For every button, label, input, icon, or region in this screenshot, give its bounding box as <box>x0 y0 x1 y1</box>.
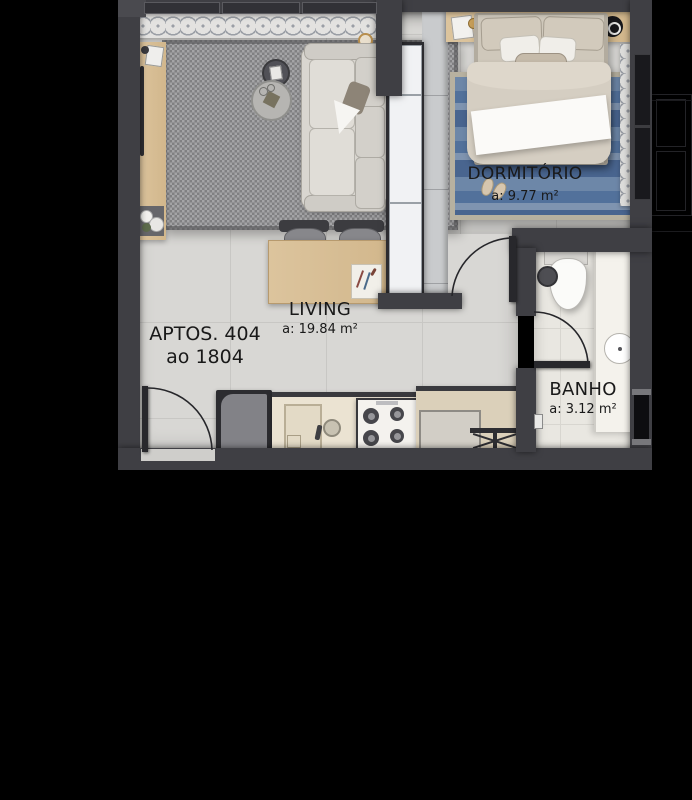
wall-bathroom-left-lower <box>516 368 536 452</box>
living-window <box>222 2 300 14</box>
wall-left <box>118 3 140 468</box>
wall-bathroom-left-upper <box>516 248 536 316</box>
placemat-utensil <box>356 270 364 288</box>
window-cap <box>632 389 651 395</box>
bathroom-window <box>634 394 649 440</box>
cooktop-label <box>376 401 398 405</box>
living-label: LIVING <box>250 299 390 320</box>
entry-opening <box>141 449 215 461</box>
living-curtain <box>136 14 378 38</box>
side-table-deco <box>269 65 283 81</box>
plate <box>149 217 164 232</box>
wall-wardrobe-cap <box>378 293 462 309</box>
living-window <box>144 2 220 14</box>
window-cap <box>632 439 651 445</box>
shower-drain <box>537 266 558 287</box>
burner <box>390 407 404 421</box>
bedroom-door-leaf <box>509 236 516 302</box>
bedroom-window <box>634 54 651 200</box>
burner <box>363 408 379 424</box>
burner <box>363 430 379 446</box>
wall-corner <box>118 0 146 17</box>
sideboard-tray <box>138 206 164 236</box>
sink-drain <box>618 347 622 351</box>
sink-soap-dish <box>287 435 301 448</box>
cooktop <box>356 398 418 454</box>
bathroom-door-leaf <box>534 361 590 368</box>
dining-table <box>268 240 392 304</box>
exterior-window-outer <box>646 100 692 232</box>
bowl <box>323 419 341 437</box>
living-window <box>302 2 377 14</box>
speaker-ring <box>608 22 621 35</box>
wall-top-bedroom <box>400 0 652 12</box>
entry-door-leaf <box>142 386 148 452</box>
wardrobe-door <box>389 95 422 203</box>
fridge-top <box>221 394 267 450</box>
bathroom-label: BANHO <box>534 379 632 400</box>
burner <box>390 429 404 443</box>
wardrobe-door <box>389 203 422 297</box>
wardrobe-bedroom-face <box>422 12 448 294</box>
wall-divider-column <box>376 0 402 96</box>
sideboard <box>137 42 166 240</box>
sideboard-handle <box>140 66 144 156</box>
floor-plan-canvas: DORMITÓRIO a: 9.77 m² LIVING a: 19.84 m²… <box>0 0 692 800</box>
window-mullion <box>635 125 650 128</box>
coffee-table-cup <box>267 84 275 92</box>
sofa-seat-cushion <box>309 128 355 196</box>
bedroom-area-label: a: 9.77 m² <box>440 189 610 204</box>
unit-range-label: APTOS. 404 ao 1804 <box>134 323 276 369</box>
service-counter <box>416 386 520 457</box>
sofa-back-cushion <box>355 157 385 209</box>
vase <box>141 46 149 54</box>
bedroom-label: DORMITÓRIO <box>440 164 610 184</box>
placemat-utensil <box>370 268 377 276</box>
duvet-fold <box>467 62 611 90</box>
unit-range-line1: APTOS. 404 <box>134 323 276 346</box>
bathroom-area-label: a: 3.12 m² <box>534 402 632 417</box>
unit-range-line2: ao 1804 <box>134 346 276 369</box>
fridge <box>216 390 272 454</box>
coffee-table <box>251 80 292 121</box>
plant <box>142 223 151 232</box>
